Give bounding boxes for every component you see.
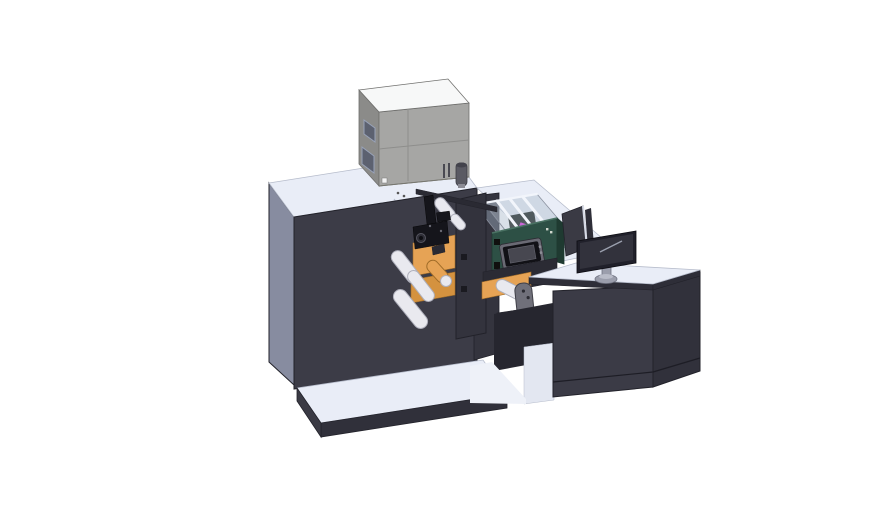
- unwind-roller-cap: [441, 276, 452, 287]
- cabinet-top-fastener: [397, 192, 400, 195]
- mechanism-side-plate: [456, 193, 486, 339]
- control-box-port: [494, 262, 500, 269]
- printhead-boss-center: [419, 236, 423, 240]
- printer-unit-corner-plate: [382, 178, 387, 183]
- printhead-detail: [429, 225, 431, 227]
- signal-cylinder: [456, 163, 467, 189]
- plate-fastener: [461, 254, 467, 260]
- control-box-port: [494, 239, 500, 245]
- main-cabinet-left-face: [269, 183, 294, 385]
- cabinet-top-fastener: [403, 195, 406, 198]
- signal-cylinder-cap: [456, 163, 467, 168]
- printhead-detail: [440, 230, 442, 232]
- control-box-led: [546, 228, 548, 230]
- printhead-bracket: [437, 211, 451, 222]
- desk-shelf-back-wall: [524, 343, 554, 404]
- monitor-base-top: [599, 274, 613, 279]
- plate-fastener: [461, 286, 467, 292]
- control-box-led: [550, 231, 552, 233]
- signal-cylinder-base: [458, 184, 465, 188]
- printer-unit: [359, 79, 469, 186]
- cad-render-canvas: [0, 0, 888, 522]
